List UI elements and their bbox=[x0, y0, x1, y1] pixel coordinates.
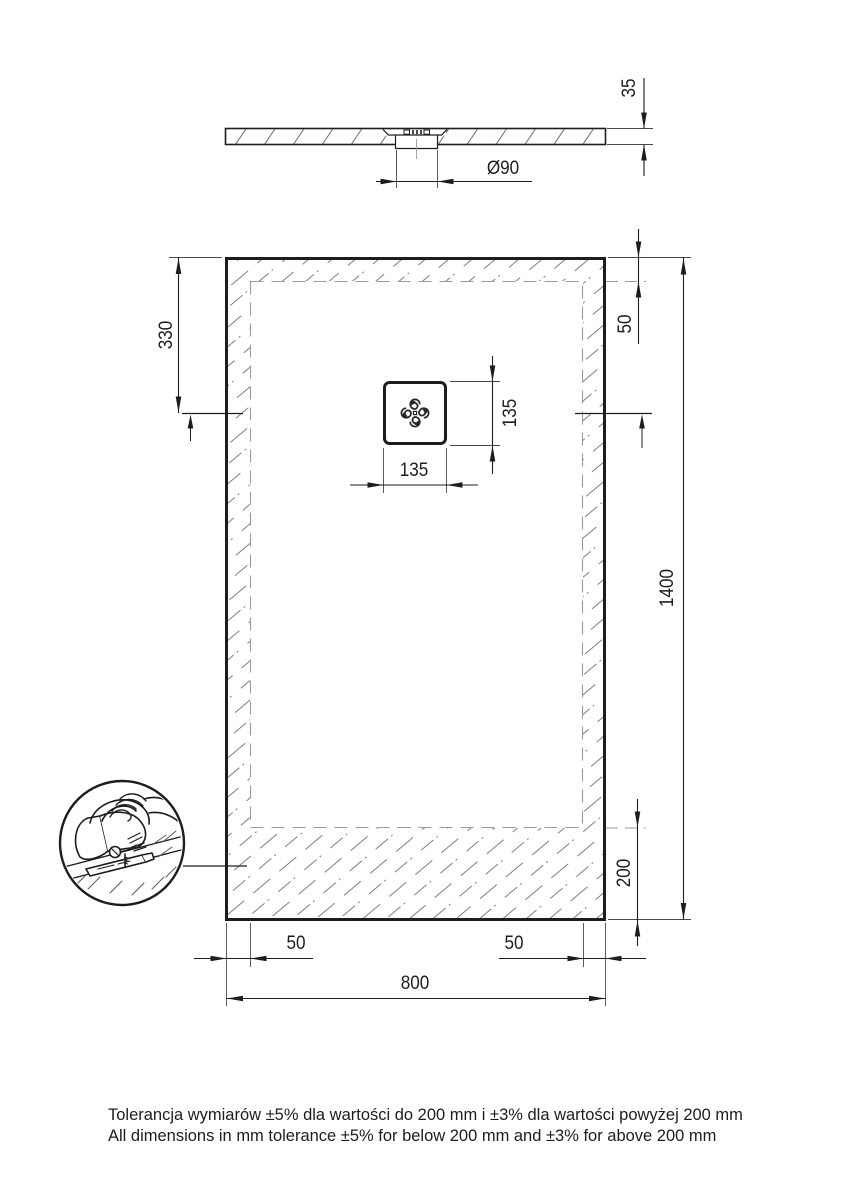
arrow-left-icon bbox=[438, 179, 454, 185]
arrow-up-icon bbox=[635, 921, 641, 937]
arrow-down-icon bbox=[681, 903, 687, 919]
dim-label-drain-width: 135 bbox=[400, 460, 429, 482]
arrow-right-icon bbox=[589, 996, 605, 1002]
drawing-page: 35 Ø90 330 50 135 135 1400 200 50 50 800… bbox=[0, 0, 849, 1200]
dim-label-margin-top: 50 bbox=[615, 314, 637, 333]
trim-boundary-dashed bbox=[251, 282, 583, 828]
dim-label-drain-diameter: Ø90 bbox=[487, 158, 519, 180]
arrow-up-icon bbox=[490, 446, 496, 462]
dim-label-thickness: 35 bbox=[619, 78, 641, 97]
tray-outline bbox=[227, 259, 605, 920]
arrow-right-icon bbox=[381, 179, 397, 185]
arrow-left-icon bbox=[251, 956, 267, 962]
arrow-left-icon bbox=[606, 956, 622, 962]
arrow-down-icon bbox=[490, 366, 496, 382]
dim-width bbox=[227, 996, 606, 1002]
dim-label-margin-left: 50 bbox=[286, 933, 305, 955]
dim-label-width: 800 bbox=[401, 973, 430, 995]
dim-label-length: 1400 bbox=[657, 569, 679, 607]
arrow-up-icon bbox=[681, 259, 687, 275]
arrow-up-icon bbox=[641, 145, 647, 161]
arrow-right-icon bbox=[568, 956, 584, 962]
arrow-down-icon bbox=[635, 812, 641, 828]
trim-zone-hatch bbox=[225, 257, 606, 921]
profile-view bbox=[226, 78, 654, 188]
arrow-left-icon bbox=[447, 482, 463, 488]
arrow-up-icon bbox=[176, 258, 182, 274]
technical-drawing bbox=[0, 0, 849, 1200]
tolerance-note-pl: Tolerancja wymiarów ±5% dla wartości do … bbox=[108, 1105, 743, 1125]
drain-square bbox=[385, 383, 446, 444]
arrow-down-icon bbox=[641, 113, 647, 129]
plan-view bbox=[169, 229, 691, 1006]
dim-label-margin-right: 50 bbox=[504, 933, 523, 955]
dim-label-drain-offset: 330 bbox=[156, 321, 178, 350]
arrow-right-icon bbox=[211, 956, 227, 962]
arrow-up-icon bbox=[636, 282, 642, 298]
arrow-down-icon bbox=[636, 242, 642, 258]
dim-label-drain-height: 135 bbox=[500, 399, 522, 428]
dim-drain-height bbox=[450, 356, 500, 474]
arrow-right-icon bbox=[368, 482, 384, 488]
arrow-down-icon bbox=[176, 397, 182, 413]
tolerance-note-en: All dimensions in mm tolerance ±5% for b… bbox=[108, 1126, 716, 1146]
arrow-left-icon bbox=[227, 996, 243, 1002]
jigsaw-detail bbox=[60, 781, 247, 905]
dim-label-trim-zone: 200 bbox=[614, 859, 636, 888]
